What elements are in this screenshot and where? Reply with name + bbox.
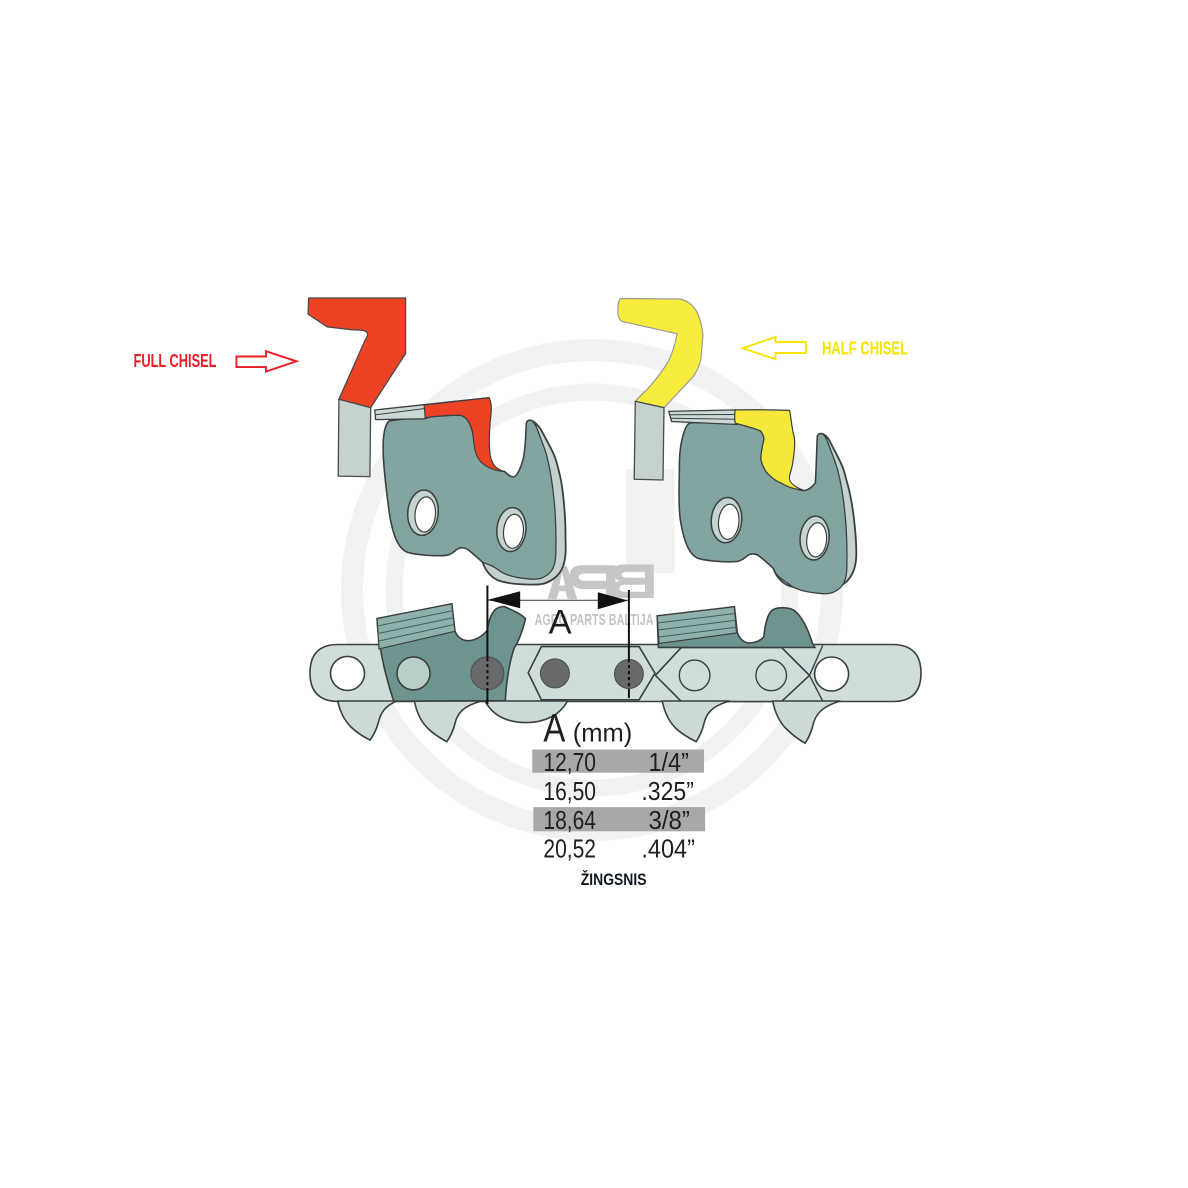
svg-text:16,50: 16,50 bbox=[543, 776, 596, 806]
svg-text:18,64: 18,64 bbox=[543, 805, 596, 835]
svg-text:1/4”: 1/4” bbox=[649, 747, 689, 777]
svg-text:ŽINGSNIS: ŽINGSNIS bbox=[581, 870, 647, 889]
svg-text:.404”: .404” bbox=[641, 833, 695, 863]
svg-text:HALF CHISEL: HALF CHISEL bbox=[822, 339, 908, 359]
svg-text:A: A bbox=[549, 603, 572, 641]
svg-text:3/8”: 3/8” bbox=[649, 805, 690, 835]
svg-text:12,70: 12,70 bbox=[543, 747, 596, 777]
svg-text:20,52: 20,52 bbox=[543, 833, 596, 863]
svg-text:(mm): (mm) bbox=[573, 718, 633, 748]
svg-text:FULL CHISEL: FULL CHISEL bbox=[134, 351, 217, 371]
svg-text:.325”: .325” bbox=[641, 776, 694, 806]
svg-text:A: A bbox=[543, 707, 565, 751]
